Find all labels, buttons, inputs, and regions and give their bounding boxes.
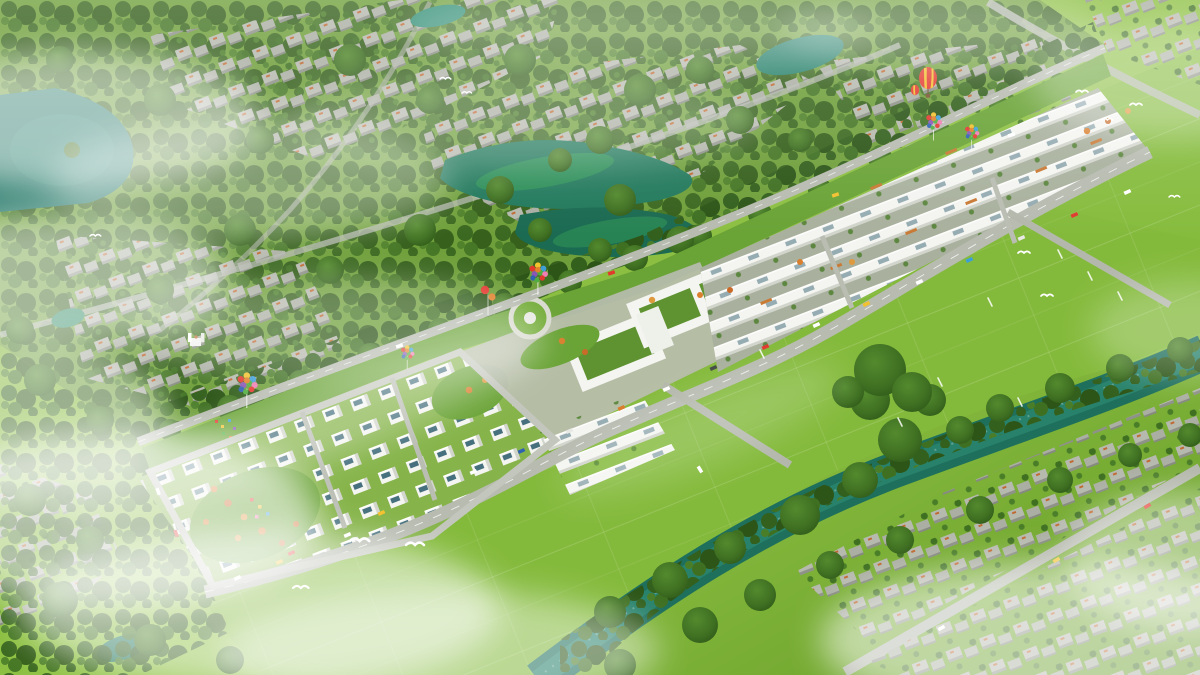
atmospheric-haze: [0, 0, 1200, 675]
aerial-render-viewport: [0, 0, 1200, 675]
aerial-render: [0, 0, 1200, 675]
